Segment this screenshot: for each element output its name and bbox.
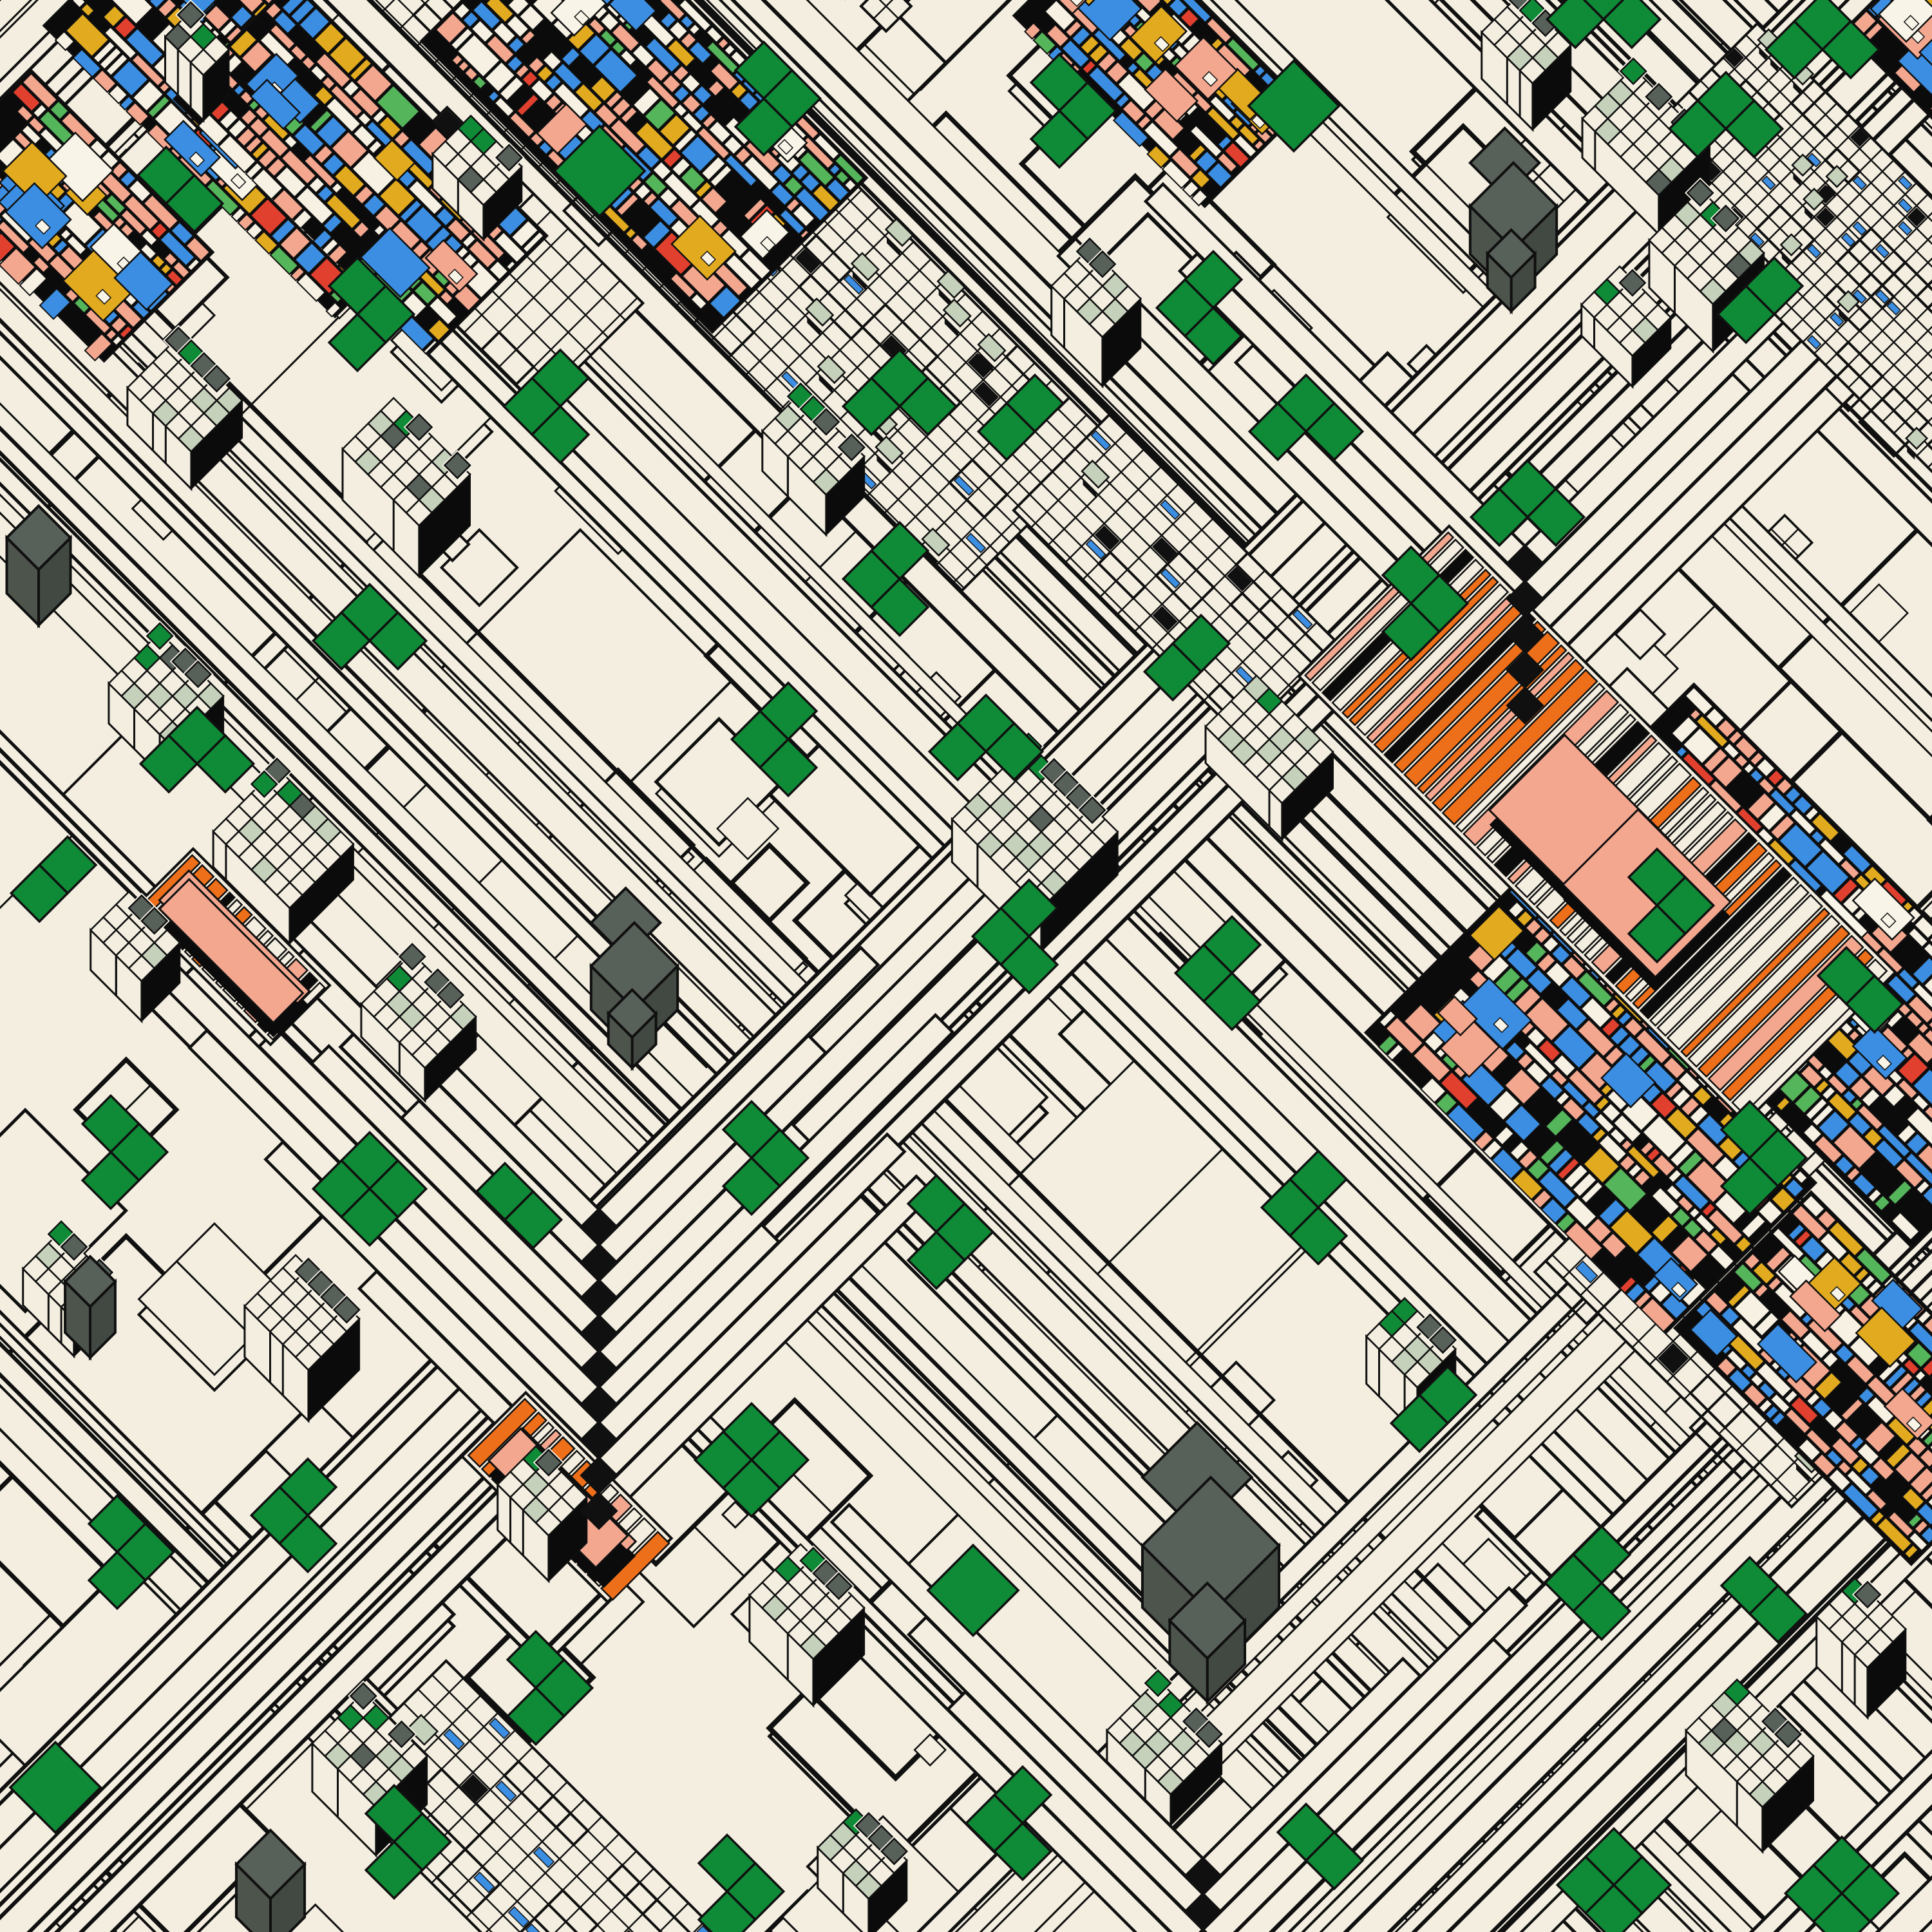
generative-isometric-artwork xyxy=(0,0,1932,1932)
artwork-canvas xyxy=(0,0,1932,1932)
